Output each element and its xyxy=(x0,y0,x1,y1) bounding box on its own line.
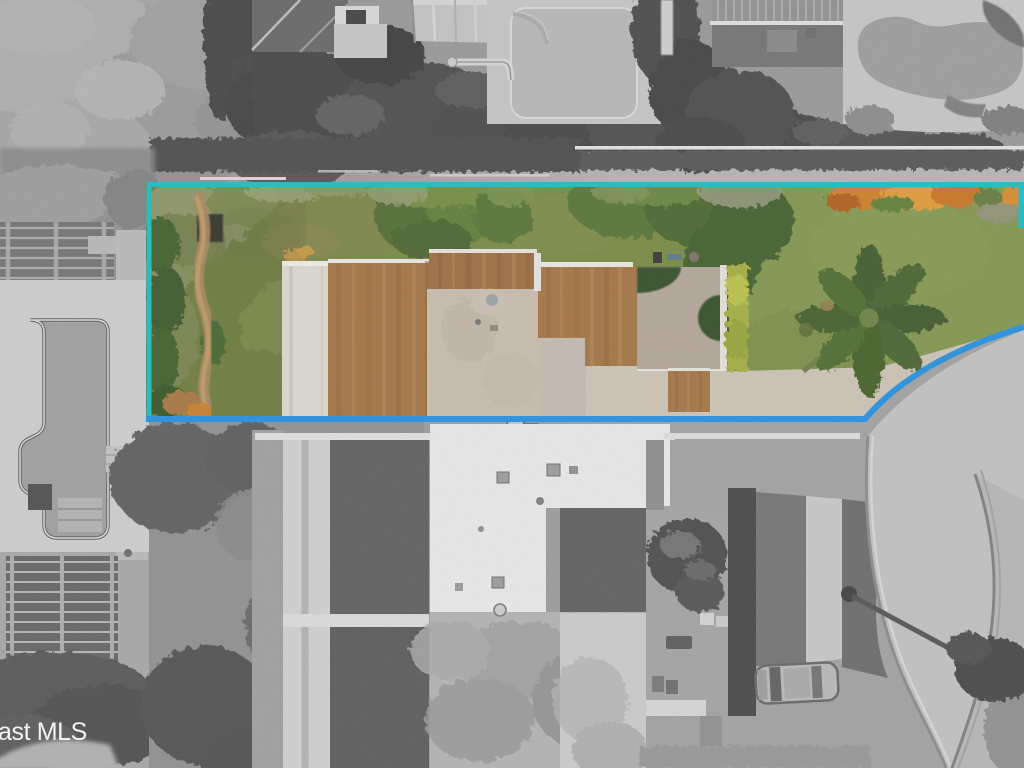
svg-text:ast MLS: ast MLS xyxy=(0,718,87,746)
